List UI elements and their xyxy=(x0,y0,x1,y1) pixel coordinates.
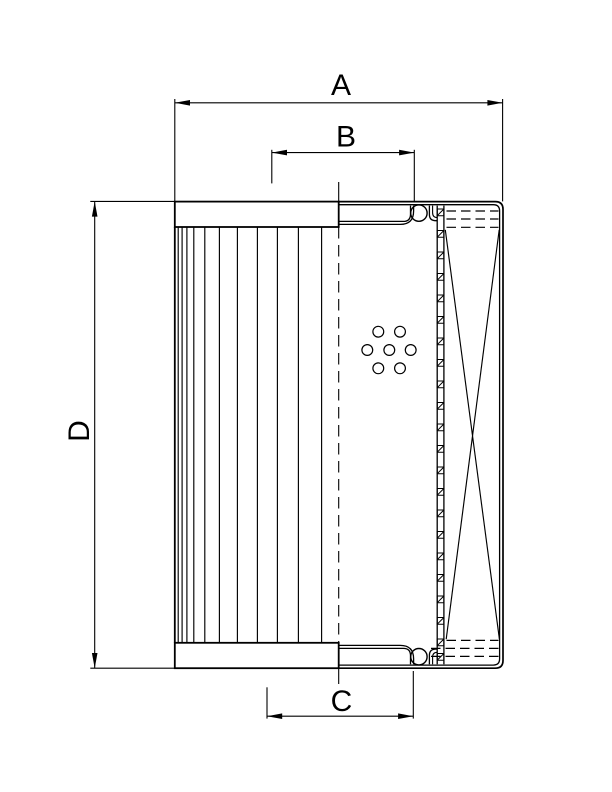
bottom-end-cap-section xyxy=(339,645,438,665)
arrow-left-icon xyxy=(272,150,287,156)
arrow-right-icon xyxy=(398,713,413,719)
drawing-page: A B C xyxy=(0,0,612,792)
end-bond-dashes xyxy=(431,211,499,656)
perforation-hole xyxy=(384,345,395,356)
pleated-media-lines xyxy=(178,227,321,643)
top-cap-pocket-wall-b xyxy=(433,206,438,218)
dimension-d-label: D xyxy=(63,420,96,442)
top-end-cap-section xyxy=(339,205,438,224)
core-tube xyxy=(437,206,444,665)
section-view-right-half xyxy=(339,202,503,669)
arrow-right-icon xyxy=(487,100,502,106)
perforation-hole xyxy=(373,363,384,374)
arrow-down-icon xyxy=(92,653,98,668)
shell-inner-surface xyxy=(339,205,500,665)
arrow-up-icon xyxy=(92,201,98,216)
dimension-a-label: A xyxy=(331,69,351,102)
shell-outer-surface xyxy=(339,202,503,669)
dimension-d: D xyxy=(63,201,177,668)
outside-view-left-half xyxy=(175,202,339,669)
perforation-hole xyxy=(373,326,384,337)
perforation-holes xyxy=(362,326,416,373)
drawing-root: A B C xyxy=(63,69,503,719)
dimension-c-label: C xyxy=(331,685,353,718)
core-tube-hatch xyxy=(437,209,444,660)
arrow-left-icon xyxy=(175,100,190,106)
perforation-hole xyxy=(362,345,373,356)
dimension-b: B xyxy=(272,120,415,201)
top-end-cap-outside xyxy=(175,202,339,227)
arrow-right-icon xyxy=(399,150,414,156)
bottom-cap-inner-sheet-a xyxy=(339,648,411,664)
top-cap-pocket-wall-a xyxy=(429,206,437,221)
dimension-c: C xyxy=(267,671,413,719)
arrow-left-icon xyxy=(267,713,282,719)
perforation-hole xyxy=(395,363,406,374)
perforation-hole xyxy=(405,345,416,356)
filter-element-technical-drawing: A B C xyxy=(0,0,612,792)
media-cross-section xyxy=(445,230,499,639)
perforation-hole xyxy=(395,326,406,337)
bottom-end-cap-outside xyxy=(175,643,339,668)
dimension-b-label: B xyxy=(336,120,356,153)
bottom-cap-pocket-wall-b xyxy=(433,652,438,664)
top-cap-inner-sheet-a xyxy=(339,206,411,222)
